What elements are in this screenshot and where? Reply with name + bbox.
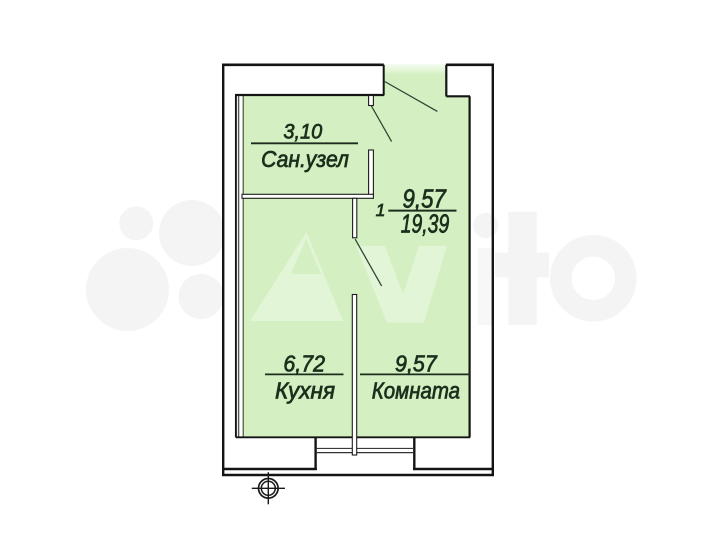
svg-text:19,39: 19,39 xyxy=(401,211,449,239)
svg-text:Комната: Комната xyxy=(372,377,460,403)
svg-text:6,72: 6,72 xyxy=(283,351,325,377)
svg-text:Сан.узел: Сан.узел xyxy=(261,146,349,172)
svg-text:1: 1 xyxy=(376,200,386,220)
svg-text:Кухня: Кухня xyxy=(275,377,335,403)
svg-text:9,57: 9,57 xyxy=(403,186,447,214)
svg-text:3,10: 3,10 xyxy=(283,118,322,143)
svg-text:9,57: 9,57 xyxy=(395,351,438,377)
